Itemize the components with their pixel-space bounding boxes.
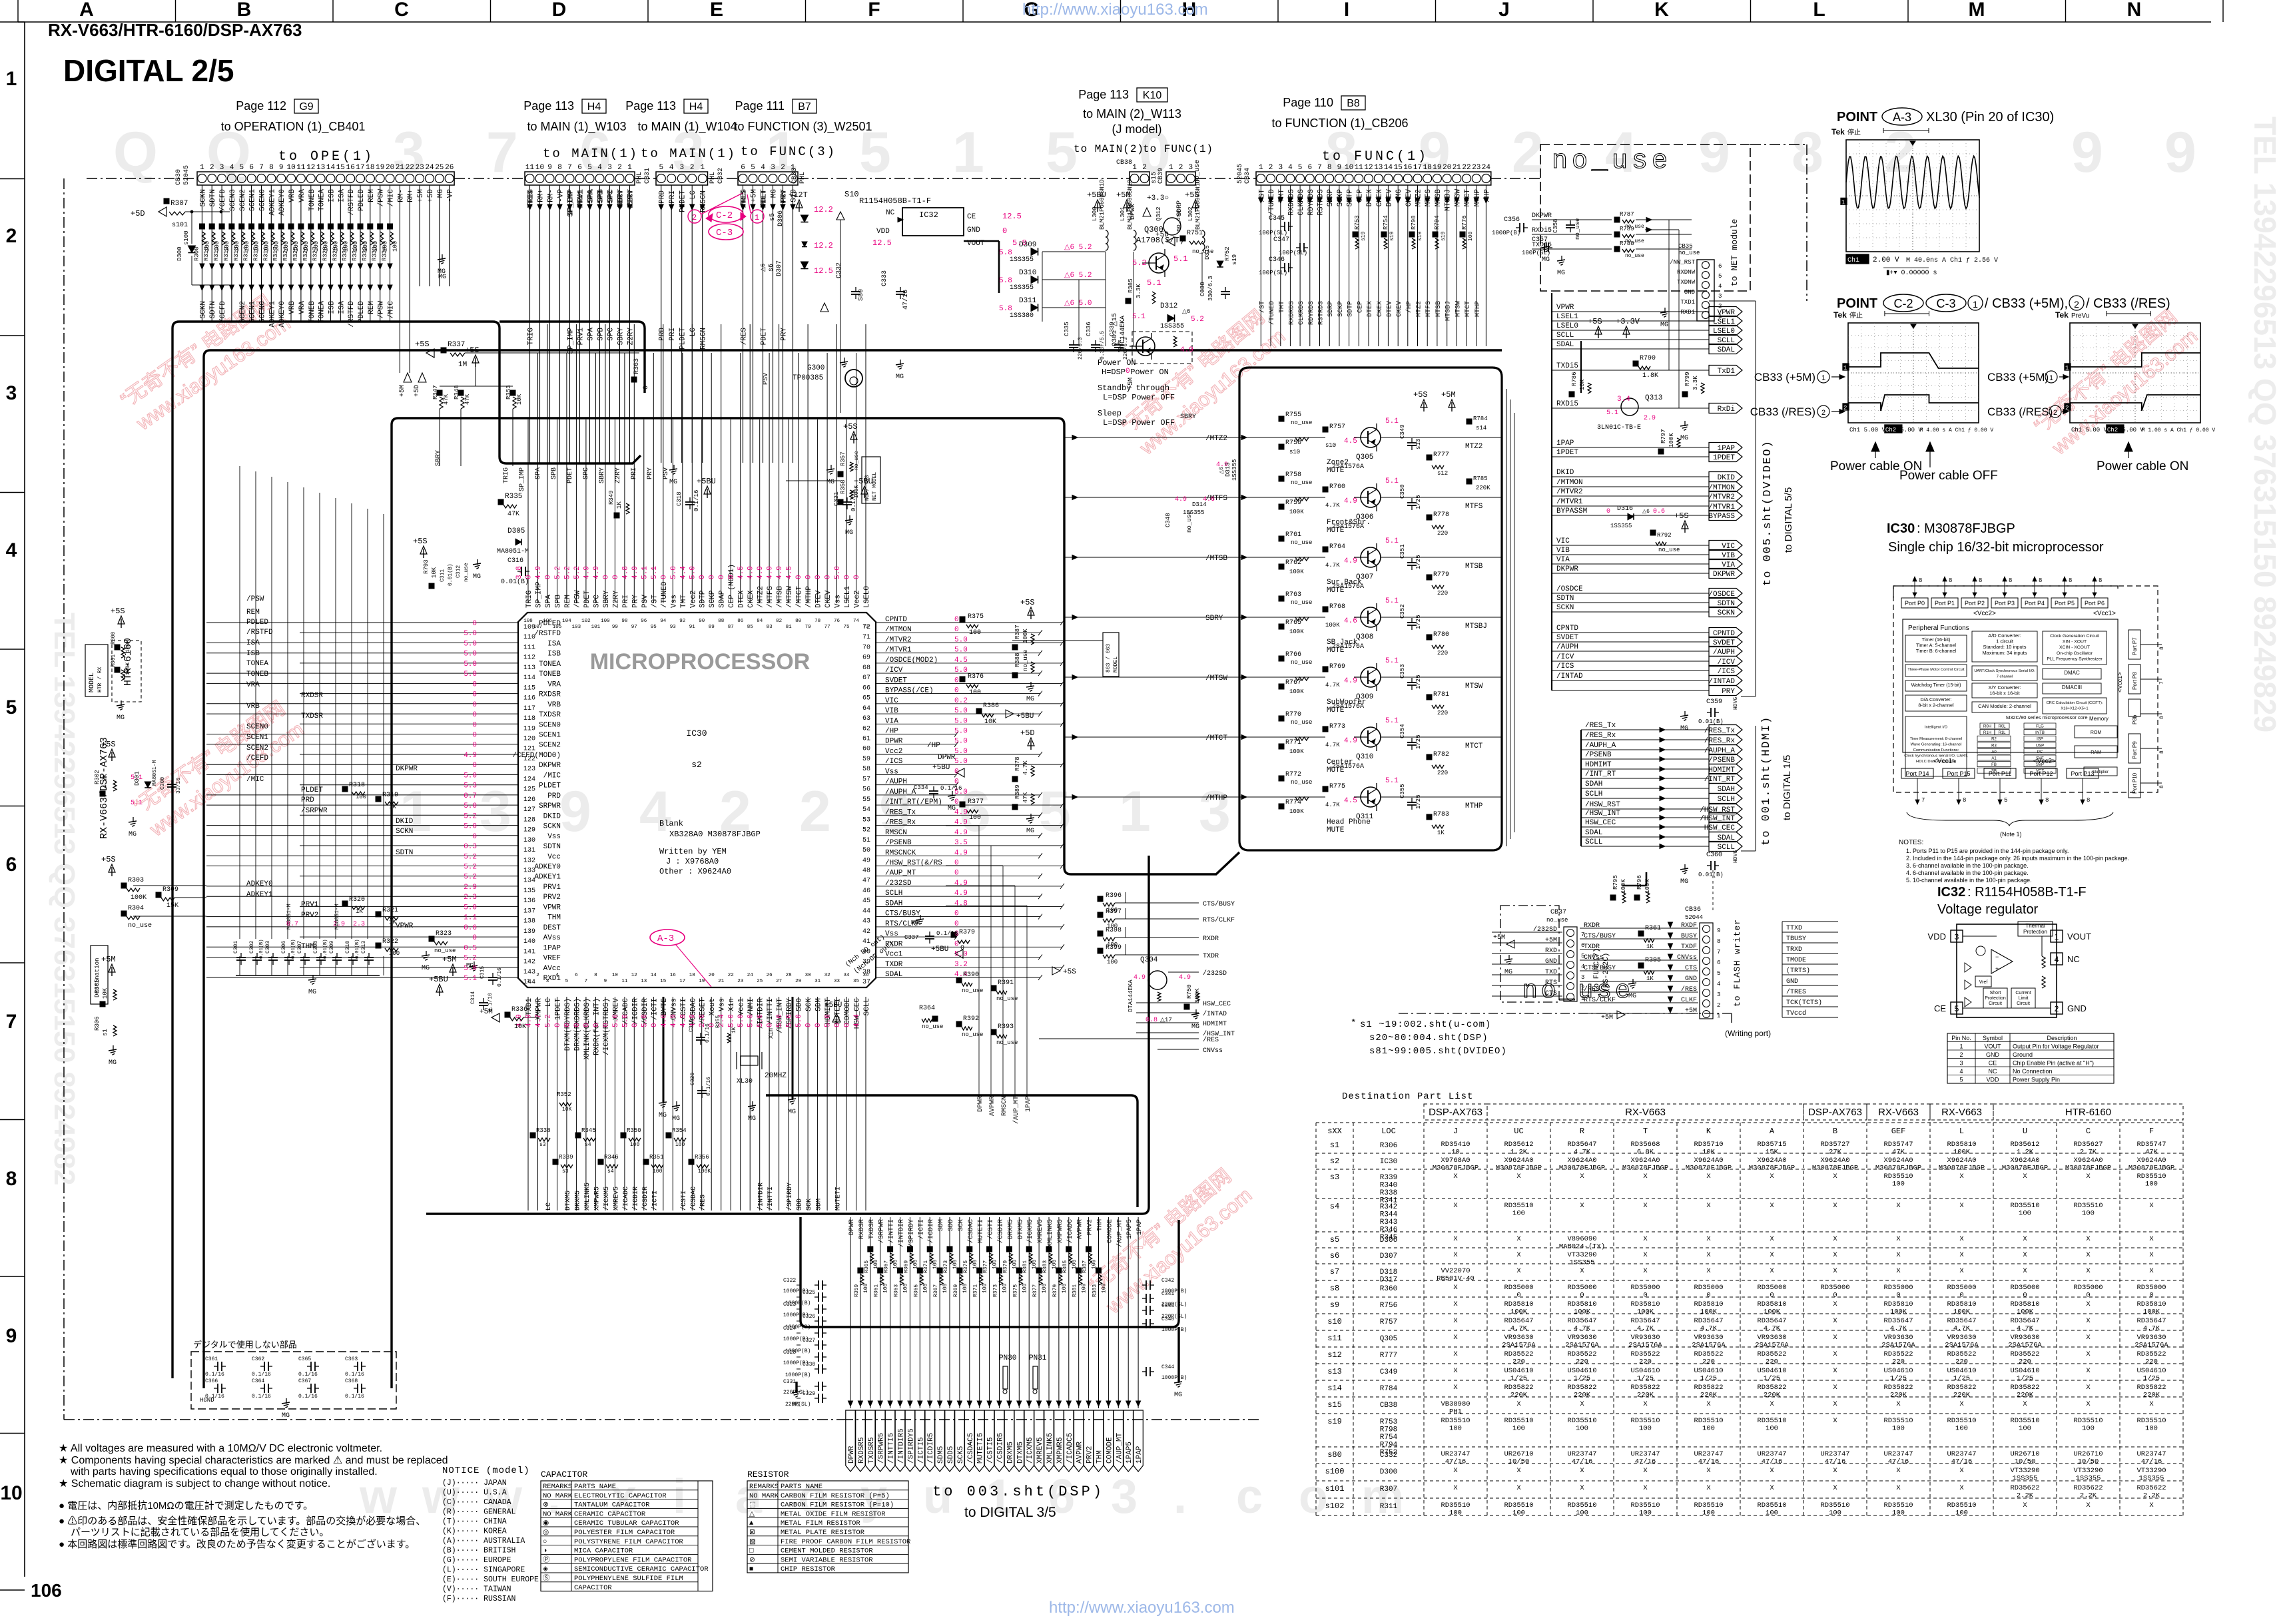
svg-text:SPA: SPA — [545, 595, 553, 608]
svg-text:(F)····· RUSSIAN: (F)····· RUSSIAN — [442, 1595, 515, 1603]
svg-text:.: . — [1173, 1470, 1187, 1523]
svg-text:R760: R760 — [1329, 483, 1345, 491]
svg-text:X: X — [1770, 1267, 1774, 1275]
svg-text:+5S: +5S — [1185, 190, 1199, 200]
svg-text:1.2K: 1.2K — [1510, 1149, 1528, 1157]
svg-text:22: 22 — [728, 973, 734, 978]
svg-text:s14: s14 — [1327, 1384, 1342, 1393]
svg-text:2: 2 — [6, 225, 17, 247]
svg-text:*: * — [1351, 1018, 1356, 1029]
svg-text:C326: C326 — [803, 1314, 815, 1320]
svg-text:C300: C300 — [160, 777, 166, 790]
svg-text:R399: R399 — [1106, 944, 1122, 951]
svg-text:0.1/16: 0.1/16 — [345, 1372, 364, 1378]
svg-text:SPB: SPB — [555, 595, 563, 608]
svg-text:+5S: +5S — [843, 422, 858, 431]
svg-text:MG: MG — [109, 1059, 117, 1067]
svg-text:21: 21 — [1453, 164, 1462, 172]
svg-text:5.0: 5.0 — [954, 637, 968, 645]
svg-text:no_use: no_use — [1291, 719, 1312, 726]
svg-text:MG: MG — [1026, 828, 1034, 835]
svg-text:PRI: PRI — [669, 190, 677, 204]
svg-text:/MTHP: /MTHP — [1205, 794, 1227, 802]
svg-text:1: 1 — [1717, 1013, 1720, 1019]
svg-text:R387: R387 — [1014, 625, 1021, 639]
svg-text:4.9: 4.9 — [954, 808, 968, 816]
svg-text:VDD: VDD — [876, 228, 890, 236]
svg-text:M30878FJBGP: M30878FJBGP — [1749, 1165, 1795, 1173]
svg-text:/ICTI: /ICTI — [917, 1219, 925, 1239]
svg-text:no_use: no_use — [996, 995, 1018, 1002]
svg-text:RD35522: RD35522 — [1883, 1350, 1913, 1358]
svg-text:SVDET: SVDET — [1556, 634, 1578, 642]
svg-text:/ICXM5: /ICXM5 — [603, 1187, 611, 1211]
svg-text:8: 8 — [2159, 750, 2165, 754]
svg-text:PLDET: PLDET — [539, 782, 561, 790]
svg-text:0: 0 — [954, 870, 959, 878]
svg-text:RD35622: RD35622 — [2010, 1484, 2039, 1492]
svg-text:Peripheral Functions: Peripheral Functions — [1908, 625, 1969, 632]
svg-text:100: 100 — [1829, 1509, 1841, 1517]
svg-text:RD35510: RD35510 — [1504, 1417, 1533, 1425]
svg-text:R769: R769 — [1329, 663, 1345, 671]
svg-text:Vss: Vss — [885, 930, 898, 938]
svg-text:UR23747: UR23747 — [1694, 1450, 1723, 1458]
svg-text:5.2: 5.2 — [1191, 316, 1204, 324]
svg-text:5.1: 5.1 — [641, 566, 649, 579]
svg-text:100K: 100K — [698, 1169, 711, 1175]
svg-text:+5S: +5S — [101, 740, 116, 749]
svg-text:100K: 100K — [2143, 1308, 2160, 1316]
svg-text:MG: MG — [438, 268, 446, 276]
svg-text:MTCT: MTCT — [1465, 301, 1472, 317]
svg-text:SDAH: SDAH — [1585, 780, 1602, 788]
svg-text:UR26710: UR26710 — [1504, 1450, 1533, 1458]
svg-text:0: 0 — [593, 1023, 601, 1027]
svg-text:デジタルで使用しない部品: デジタルで使用しない部品 — [193, 1340, 297, 1350]
svg-text:SDTN: SDTN — [1718, 600, 1735, 608]
svg-text:PRI: PRI — [669, 328, 677, 341]
svg-text:RD35510: RD35510 — [2010, 1417, 2039, 1425]
svg-text:9: 9 — [559, 780, 591, 844]
svg-text:Vss: Vss — [834, 595, 842, 608]
svg-text:R774: R774 — [1285, 799, 1301, 806]
svg-text:+5S: +5S — [1674, 511, 1689, 521]
svg-text:LSEL1: LSEL1 — [844, 586, 852, 608]
svg-text:SDAH: SDAH — [1718, 786, 1735, 794]
svg-text:MG: MG — [1557, 270, 1565, 277]
svg-text:100P(SL): 100P(SL) — [1522, 250, 1550, 256]
svg-text:△: △ — [749, 1510, 755, 1518]
svg-text:IC30: IC30 — [1887, 521, 1915, 536]
svg-text:0.1/16: 0.1/16 — [693, 490, 700, 511]
svg-text:X9624A0: X9624A0 — [1567, 1157, 1596, 1165]
svg-text:HDMIMT: HDMIMT — [1708, 766, 1735, 774]
svg-text:MTFS: MTFS — [1425, 301, 1433, 317]
svg-text:DTXM5: DTXM5 — [1017, 1219, 1024, 1239]
svg-text:/HP: /HP — [927, 742, 940, 750]
svg-text:to MAIN (1)_W104: to MAIN (1)_W104 — [637, 120, 737, 134]
svg-text:62: 62 — [862, 725, 870, 732]
svg-text:0: 0 — [834, 1023, 842, 1027]
svg-text:/RES_Tx: /RES_Tx — [1585, 722, 1616, 730]
svg-text:/INTTI: /INTTI — [888, 1219, 896, 1243]
svg-text:220: 220 — [1437, 650, 1448, 657]
svg-text:10/50: 10/50 — [2015, 1458, 2036, 1466]
svg-text:4.5: 4.5 — [737, 566, 745, 579]
svg-text:X16+X12+X5+1: X16+X12+X5+1 — [2061, 707, 2088, 711]
svg-text:220/6.3: 220/6.3 — [1078, 337, 1084, 360]
svg-text:C349: C349 — [1380, 1368, 1397, 1376]
svg-text:/TUNED: /TUNED — [1268, 301, 1276, 325]
svg-text:4.7K: 4.7K — [1325, 502, 1340, 509]
svg-text:2SA1576A: 2SA1576A — [2008, 1342, 2042, 1350]
svg-text:30: 30 — [805, 973, 812, 978]
svg-text:104: 104 — [562, 619, 571, 624]
svg-text:/ICV: /ICV — [1718, 659, 1736, 667]
svg-text:R304: R304 — [128, 905, 144, 912]
svg-text:10: 10 — [286, 164, 295, 172]
svg-text:5.1: 5.1 — [1385, 777, 1399, 785]
svg-text:0: 0 — [699, 575, 707, 579]
svg-text:△17: △17 — [1160, 1017, 1172, 1023]
svg-text:GND: GND — [1545, 958, 1557, 965]
svg-text:RD35510: RD35510 — [1694, 1417, 1723, 1425]
svg-text:R387: R387 — [1082, 1260, 1088, 1273]
svg-text:http://www.xiaoyu163.com: http://www.xiaoyu163.com — [1022, 1, 1208, 19]
svg-text:R776: R776 — [1461, 215, 1468, 230]
svg-text:Thermal: Thermal — [2025, 923, 2045, 929]
svg-text:220K: 220K — [1574, 1392, 1591, 1400]
svg-text:⊗: ⊗ — [543, 1501, 549, 1509]
svg-text:4.7: 4.7 — [535, 1014, 543, 1027]
svg-text:20: 20 — [1443, 164, 1451, 172]
svg-text:R752: R752 — [1224, 246, 1231, 261]
svg-text:SPB: SPB — [551, 467, 558, 479]
svg-text:Ch2: Ch2 — [2107, 427, 2118, 433]
svg-text:100K: 100K — [1194, 988, 1201, 1003]
svg-text:Destination: Destination — [94, 958, 101, 997]
svg-text:+5D: +5D — [414, 385, 421, 397]
svg-text:106: 106 — [31, 1580, 62, 1601]
svg-text:100K: 100K — [1890, 1308, 1907, 1316]
svg-text:MG: MG — [1680, 878, 1688, 886]
svg-text:X: X — [2086, 1317, 2091, 1325]
svg-text:5.1: 5.1 — [1385, 477, 1399, 485]
svg-text:2: 2 — [2055, 1004, 2059, 1013]
svg-text:Protection: Protection — [1985, 996, 2006, 1001]
svg-text:0: 0 — [472, 762, 477, 770]
svg-text:8: 8 — [594, 973, 597, 978]
svg-text:C331: C331 — [783, 1379, 796, 1385]
svg-text:X: X — [1833, 1317, 1837, 1325]
svg-text:XMLINK(CLKRDS): XMLINK(CLKRDS) — [583, 998, 591, 1059]
svg-text:1SS355: 1SS355 — [1010, 284, 1034, 292]
svg-text:9: 9 — [547, 164, 552, 172]
svg-text:C327: C327 — [803, 1338, 815, 1344]
svg-text:100: 100 — [1892, 1425, 1905, 1433]
svg-text:220/6.3: 220/6.3 — [1123, 337, 1129, 360]
svg-text:0: 0 — [795, 575, 803, 579]
svg-text:s5: s5 — [1330, 1235, 1339, 1244]
svg-text:4.7K: 4.7K — [1890, 1325, 1907, 1333]
svg-text:44: 44 — [862, 908, 870, 915]
svg-text:MG: MG — [896, 374, 904, 381]
svg-text:5.0: 5.0 — [621, 1014, 629, 1027]
svg-text:C350: C350 — [1399, 484, 1406, 499]
svg-text:R771: R771 — [1285, 739, 1301, 746]
svg-text:5: 5 — [1718, 273, 1722, 280]
svg-text:SDTN: SDTN — [396, 849, 413, 857]
svg-text:/SRPWR: /SRPWR — [301, 807, 328, 815]
svg-text:PC: PC — [2037, 750, 2043, 754]
svg-text:s81~99:005.sht(DVIDEO): s81~99:005.sht(DVIDEO) — [1369, 1046, 1507, 1057]
svg-text:95: 95 — [651, 625, 657, 630]
svg-text:5.0: 5.0 — [728, 1014, 736, 1027]
svg-text:RXDRDS: RXDRDS — [1288, 301, 1295, 325]
svg-text:MTSBJ: MTSBJ — [1445, 189, 1453, 211]
svg-text:Z2RY: Z2RY — [627, 190, 635, 208]
svg-text:VREF: VREF — [543, 955, 561, 963]
svg-text:80: 80 — [795, 619, 802, 624]
svg-text:+5M: +5M — [442, 955, 457, 964]
svg-text:SPA: SPA — [587, 328, 595, 341]
svg-text:C325: C325 — [803, 1290, 815, 1296]
svg-text:/AUPH: /AUPH — [885, 778, 907, 786]
svg-text:SCEN0: SCEN0 — [259, 301, 267, 323]
svg-text:X: X — [2149, 1235, 2154, 1243]
svg-text:R787: R787 — [1620, 211, 1634, 218]
svg-text:Timer B: 6-channel: Timer B: 6-channel — [1916, 648, 1957, 654]
svg-text:NC: NC — [886, 209, 895, 217]
svg-text:RD35000: RD35000 — [1820, 1284, 1849, 1292]
svg-text:TONEA: TONEA — [318, 189, 326, 211]
svg-text:⊘: ⊘ — [749, 1556, 755, 1564]
svg-text:+5D: +5D — [427, 189, 435, 202]
svg-text:TXDi: TXDi — [1680, 299, 1695, 306]
svg-text:DPWR: DPWR — [938, 754, 956, 762]
svg-text:XMLINK5: XMLINK5 — [584, 1183, 591, 1211]
svg-text:AVPWR: AVPWR — [989, 1096, 996, 1116]
svg-text:X: X — [1770, 1251, 1774, 1259]
svg-text:10K: 10K — [514, 1023, 526, 1031]
svg-text:0: 0 — [718, 575, 726, 579]
svg-text:to DIGITAL 1/5: to DIGITAL 1/5 — [1782, 755, 1793, 820]
svg-text:/MTSW: /MTSW — [786, 586, 794, 608]
svg-text:58: 58 — [862, 766, 870, 773]
svg-text:+5BU: +5BU — [931, 946, 948, 953]
svg-text:X: X — [1896, 1202, 1901, 1210]
svg-text:/TUNED: /TUNED — [1268, 189, 1276, 216]
svg-text:0: 0 — [2023, 1292, 2027, 1300]
svg-text:1: 1 — [1259, 164, 1263, 172]
svg-text:no_use: no_use — [434, 947, 456, 954]
svg-text:/ICXM5: /ICXM5 — [1026, 1437, 1034, 1464]
svg-text:21: 21 — [396, 164, 405, 172]
svg-text:CB37: CB37 — [1550, 909, 1566, 916]
svg-text:FLG: FLG — [2036, 725, 2044, 729]
svg-text:RB501V-40: RB501V-40 — [1437, 1275, 1474, 1283]
svg-text:Maximum: 34 inputs: Maximum: 34 inputs — [1982, 650, 2027, 656]
svg-text:R755: R755 — [1285, 411, 1301, 419]
svg-text:MG: MG — [1026, 696, 1034, 703]
svg-text:Clock Generation Circuit: Clock Generation Circuit — [2050, 634, 2099, 639]
svg-text:R782: R782 — [1433, 751, 1449, 758]
svg-text:R772: R772 — [1285, 771, 1301, 778]
svg-text:NET MODEL: NET MODEL — [872, 472, 878, 501]
svg-text:⬚: ⬚ — [749, 1501, 756, 1509]
svg-text:0: 0 — [472, 934, 477, 942]
svg-text:to FUNC(3): to FUNC(3) — [741, 144, 836, 159]
svg-text:7: 7 — [486, 121, 518, 184]
svg-text:C314: C314 — [470, 991, 476, 1004]
svg-text:Page 111: Page 111 — [735, 99, 785, 113]
svg-text:0: 0 — [954, 920, 959, 928]
svg-text:Page 113: Page 113 — [523, 99, 574, 113]
svg-text:/CSDAC5: /CSDAC5 — [967, 1433, 975, 1464]
svg-text:DPWR: DPWR — [848, 1219, 856, 1235]
svg-text:25: 25 — [435, 164, 444, 172]
svg-text:1/25: 1/25 — [1415, 615, 1422, 629]
svg-text:100: 100 — [1042, 1283, 1048, 1293]
svg-text:/CEFD: /CEFD — [219, 189, 227, 211]
svg-text:100: 100 — [962, 1283, 968, 1293]
svg-text:X: X — [1770, 1400, 1774, 1408]
svg-text:R392: R392 — [963, 1015, 979, 1023]
svg-text:RD35510: RD35510 — [2136, 1173, 2166, 1181]
svg-text:M30878FJBGP: M30878FJBGP — [1686, 1165, 1732, 1173]
svg-text:D307: D307 — [1380, 1252, 1397, 1260]
svg-text:to MAIN (2)_W113: to MAIN (2)_W113 — [1083, 107, 1181, 121]
svg-text:R775: R775 — [1329, 783, 1345, 790]
svg-text:LSEL0: LSEL0 — [1713, 328, 1735, 336]
svg-text:Vss: Vss — [670, 595, 678, 608]
svg-text:C363: C363 — [345, 1356, 358, 1362]
svg-text:3: 3 — [6, 382, 17, 404]
svg-text:/MTFS: /MTFS — [767, 586, 775, 608]
svg-text:/ICTI5: /ICTI5 — [917, 1437, 925, 1464]
svg-text:4.7K: 4.7K — [1574, 1325, 1591, 1333]
svg-text:CEP: CEP — [1357, 301, 1364, 313]
svg-text:R770: R770 — [1285, 711, 1301, 718]
svg-text:/INTTI5: /INTTI5 — [888, 1433, 896, 1464]
svg-text:TXDR: TXDR — [1584, 944, 1600, 951]
svg-text:5: 5 — [1298, 164, 1303, 172]
svg-text:MTSBJ: MTSBJ — [1445, 301, 1453, 321]
svg-text:/CEFD: /CEFD — [219, 301, 227, 323]
svg-text:2SA1576A: 2SA1576A — [1332, 703, 1364, 710]
svg-text:47/16: 47/16 — [1762, 1458, 1783, 1466]
svg-text:+5M: +5M — [1128, 378, 1135, 390]
svg-text:VIA: VIA — [1556, 556, 1570, 564]
svg-text:TXDSR: TXDSR — [301, 712, 323, 720]
svg-text:C348: C348 — [1165, 513, 1171, 527]
svg-text:4.9: 4.9 — [1344, 557, 1357, 565]
svg-text:9: 9 — [6, 1325, 17, 1347]
svg-text:C319: C319 — [689, 1019, 695, 1032]
svg-text:/ICADC: /ICADC — [1066, 1219, 1074, 1243]
svg-text:124: 124 — [523, 776, 535, 783]
svg-text:SCLL: SCLL — [1585, 838, 1602, 846]
svg-text:MAB024-(TX): MAB024-(TX) — [1559, 1243, 1605, 1251]
svg-text:0: 0 — [563, 1023, 571, 1027]
svg-text:VIA: VIA — [885, 717, 898, 725]
svg-text:RD35510: RD35510 — [1820, 1501, 1849, 1509]
svg-text:Q: Q — [113, 121, 158, 184]
svg-text:100: 100 — [903, 1283, 909, 1293]
svg-text:AVcc: AVcc — [543, 965, 561, 973]
svg-text:R316: R316 — [262, 246, 269, 261]
svg-text:220P(SL): 220P(SL) — [785, 1402, 811, 1408]
svg-text:55: 55 — [862, 796, 870, 804]
svg-text:THM: THM — [547, 914, 561, 922]
svg-text:DKPWR: DKPWR — [539, 762, 561, 770]
svg-text:12.5: 12.5 — [1002, 212, 1022, 221]
svg-text:GND: GND — [2067, 1003, 2087, 1013]
svg-text:R369: R369 — [953, 1284, 959, 1297]
svg-text:SDTN: SDTN — [209, 189, 217, 206]
svg-text:100: 100 — [969, 629, 981, 637]
svg-text:M32C/80 series microprocessor: M32C/80 series microprocessor core — [2006, 714, 2088, 720]
svg-text:RD35510: RD35510 — [2073, 1417, 2103, 1425]
svg-text:3.3K: 3.3K — [1692, 376, 1699, 390]
svg-text:TEL 13942296513 QQ 376315150: TEL 13942296513 QQ 376315150 89249829 — [2248, 117, 2282, 732]
svg-text:C-3: C-3 — [1936, 297, 1955, 310]
svg-text:59: 59 — [862, 756, 870, 763]
svg-text:0.6: 0.6 — [1653, 508, 1665, 515]
svg-text:no_use: no_use — [128, 922, 152, 930]
svg-text:/RES: /RES — [1681, 985, 1697, 993]
svg-text:0: 0 — [1833, 1292, 1837, 1300]
svg-text:47: 47 — [862, 878, 870, 885]
svg-text:5.2: 5.2 — [1132, 258, 1147, 268]
svg-text:26: 26 — [445, 164, 454, 172]
svg-text:X: X — [1959, 1235, 1964, 1243]
svg-text:s19: s19 — [1327, 1417, 1342, 1426]
svg-text:DTEV: DTEV — [815, 590, 823, 608]
svg-text:Vcc2: Vcc2 — [689, 591, 697, 608]
svg-text:VT33290: VT33290 — [2073, 1467, 2103, 1475]
svg-text:X: X — [2086, 1235, 2091, 1243]
svg-text:76: 76 — [834, 619, 840, 624]
svg-text:R336: R336 — [511, 1006, 527, 1013]
svg-text:5.1: 5.1 — [1173, 254, 1188, 264]
svg-text:NC: NC — [2067, 954, 2080, 964]
svg-text:100K: 100K — [1700, 1308, 1718, 1316]
svg-text:INTB: INTB — [2035, 731, 2045, 735]
svg-text:s100: s100 — [1325, 1467, 1345, 1476]
svg-text:/ICV: /ICV — [885, 667, 903, 675]
svg-text:Chip Enable Pin (active at "H": Chip Enable Pin (active at "H") — [2013, 1060, 2094, 1067]
svg-text:/RES_Rx: /RES_Rx — [1585, 732, 1616, 740]
svg-text:1: 1 — [1959, 1043, 1963, 1050]
svg-text:C360: C360 — [1706, 852, 1722, 859]
svg-text:to DIGITAL 3/5: to DIGITAL 3/5 — [964, 1505, 1056, 1520]
svg-text:R350: R350 — [627, 1127, 641, 1134]
svg-text:47K: 47K — [1892, 1149, 1905, 1157]
svg-text:R354: R354 — [672, 1127, 687, 1134]
svg-text:4.5: 4.5 — [786, 566, 794, 579]
svg-text:X: X — [1896, 1235, 1901, 1243]
svg-text:/CEFD(MOD0): /CEFD(MOD0) — [512, 752, 561, 760]
svg-text:RD35510: RD35510 — [2073, 1202, 2103, 1210]
svg-text:TXDSR: TXDSR — [868, 1219, 876, 1239]
svg-text:5: 5 — [565, 979, 569, 984]
svg-text:5.1: 5.1 — [464, 975, 477, 983]
svg-text:US04610: US04610 — [1947, 1367, 1976, 1375]
svg-text:/MTVR1: /MTVR1 — [1708, 503, 1735, 511]
svg-text:A1: A1 — [1991, 757, 1997, 761]
